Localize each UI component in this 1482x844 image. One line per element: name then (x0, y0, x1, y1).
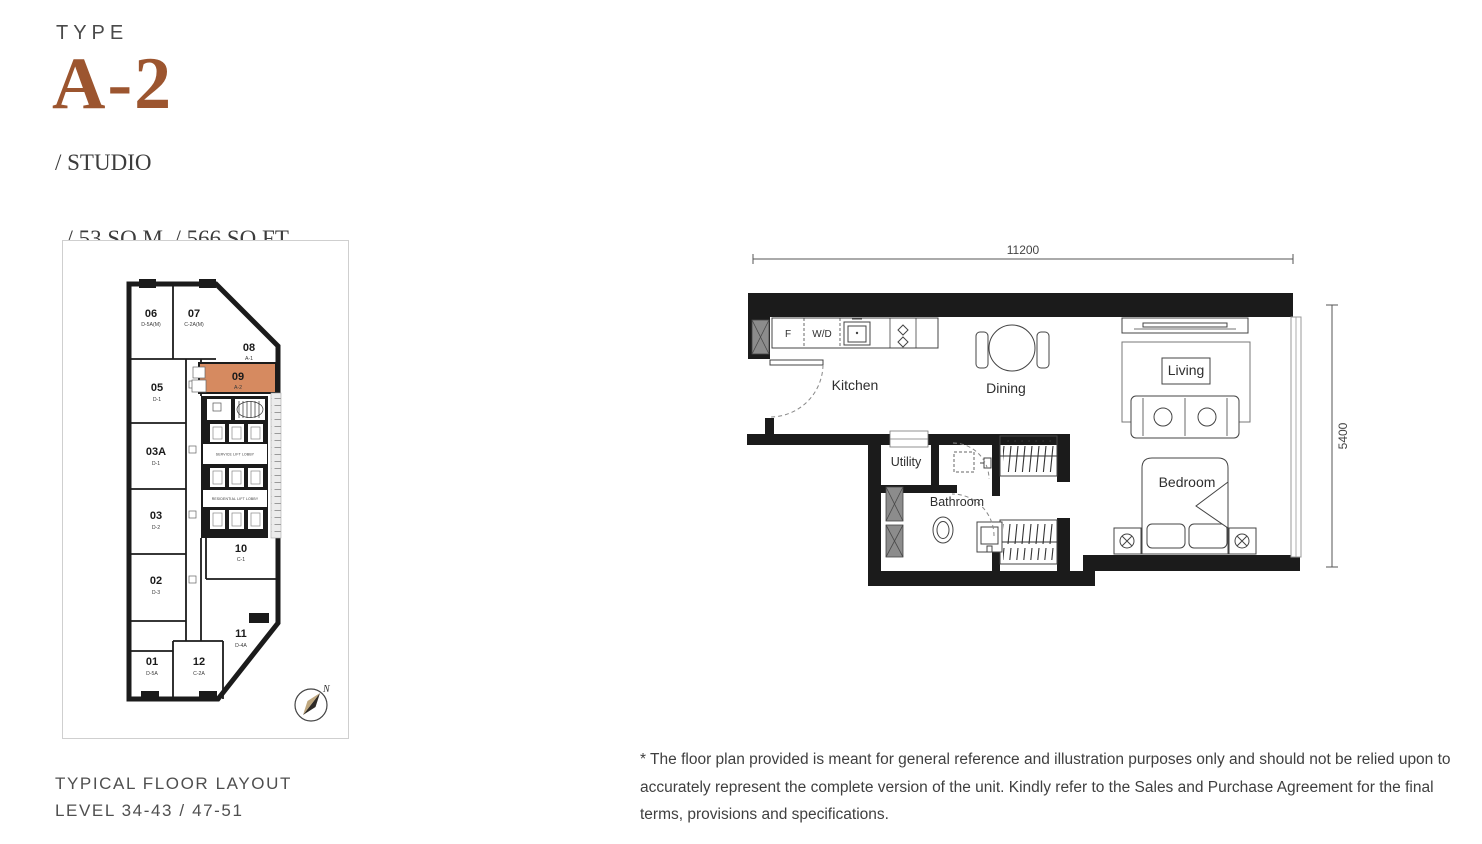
wardrobe-top (1000, 436, 1057, 476)
shower-icon (954, 452, 974, 472)
unit-01-no: 01 (146, 656, 158, 668)
kitchen-label: Kitchen (832, 377, 879, 393)
living-area: Living (1122, 318, 1250, 438)
dim-width-label: 11200 (1007, 243, 1040, 257)
unit-08-no: 08 (243, 342, 255, 354)
unit-09-type: A-2 (234, 385, 242, 391)
unit-plan-svg: 11200 5400 (740, 240, 1400, 600)
spec-studio: / STUDIO (55, 150, 151, 175)
unit-11-core (249, 613, 269, 623)
washer-dryer-label: W/D (812, 329, 831, 340)
lift-core: SERVICE LIFT LOBBY RESIDENTIAL LIFT LOBB… (201, 396, 268, 538)
kitchen-counter: F W/D (772, 318, 938, 348)
unit-10-type: C-1 (237, 557, 245, 563)
bathroom-label: Bathroom (930, 495, 984, 509)
fridge-label: F (785, 329, 791, 340)
entry-door (770, 360, 823, 417)
service-lobby-label: SERVICE LIFT LOBBY (216, 453, 255, 457)
sink-icon (844, 319, 870, 345)
pillow (1189, 524, 1227, 548)
floor-plan-page: TYPE A-2 / STUDIO / 53 SQ.M. / 566 SQ.FT… (0, 0, 1482, 844)
disclaimer-text: * The floor plan provided is meant for g… (640, 746, 1452, 829)
unit-01-type: D-5A (146, 671, 158, 677)
unit-02-no: 02 (150, 575, 162, 587)
dimension-depth: 5400 (1326, 305, 1350, 567)
unit-06-type: D-5A(M) (141, 322, 161, 328)
lift-row (210, 510, 263, 529)
unit-07-no: 07 (188, 308, 200, 320)
pillow (1147, 524, 1185, 548)
unit-12-no: 12 (193, 656, 205, 668)
unit-06-no: 06 (145, 308, 157, 320)
vanity-icon (977, 522, 1002, 552)
compass-n-label: N (322, 684, 331, 695)
unit-09-fixture (193, 367, 205, 378)
wardrobe-bottom (1000, 520, 1057, 564)
unit-03-no: 03 (150, 510, 162, 522)
key-plan-panel: SERVICE LIFT LOBBY RESIDENTIAL LIFT LOBB… (62, 240, 349, 739)
bedside-table (1229, 528, 1256, 554)
stair (235, 399, 265, 420)
bedroom-label: Bedroom (1159, 474, 1216, 490)
lift-row (210, 468, 263, 487)
unit-03A-type: D-1 (152, 461, 160, 467)
compass: N (295, 684, 331, 721)
window (1291, 317, 1301, 557)
unit-09-fixture (192, 380, 206, 392)
dining-set (976, 325, 1049, 371)
footer-caption: TYPICAL FLOOR LAYOUT LEVEL 34-43 / 47-51 (55, 770, 292, 824)
bathroom-area: Bathroom (930, 443, 1002, 552)
key-plan-svg: SERVICE LIFT LOBBY RESIDENTIAL LIFT LOBB… (63, 241, 348, 738)
facade-strip (271, 393, 281, 538)
unit-floor-plan: 11200 5400 (740, 240, 1400, 600)
unit-code-title: A-2 (52, 42, 173, 127)
unit-12-type: C-2A (193, 671, 205, 677)
unit-07-type: C-2A(M) (184, 322, 204, 328)
unit-09-no: 09 (232, 371, 244, 383)
toilet-icon (933, 517, 953, 543)
layout-title: TYPICAL FLOOR LAYOUT (55, 770, 292, 797)
unit-05-type: D-1 (153, 397, 161, 403)
residential-lobby-label: RESIDENTIAL LIFT LOBBY (212, 497, 259, 501)
utility-label: Utility (891, 455, 922, 469)
lift-row (210, 424, 263, 442)
layout-levels: LEVEL 34-43 / 47-51 (55, 797, 292, 824)
unit-10-no: 10 (235, 543, 247, 555)
unit-03-type: D-2 (152, 525, 160, 531)
dining-table (989, 325, 1035, 371)
shower-door-arc (953, 443, 989, 479)
unit-08-type: A-1 (245, 356, 253, 362)
bedroom-area: Bedroom (1114, 458, 1256, 554)
unit-05-no: 05 (151, 382, 163, 394)
unit-02-type: D-3 (152, 590, 160, 596)
tv-icon (1143, 323, 1227, 327)
living-label: Living (1168, 362, 1205, 378)
dimension-width: 11200 (753, 243, 1293, 264)
dim-depth-label: 5400 (1336, 422, 1350, 449)
bedside-table (1114, 528, 1141, 554)
dining-label: Dining (986, 380, 1026, 396)
unit-11-type: D-4A (235, 643, 247, 649)
shower-head-icon (984, 458, 991, 468)
unit-03A-no: 03A (146, 446, 166, 458)
unit-11-no: 11 (235, 628, 247, 640)
sofa (1131, 396, 1239, 438)
